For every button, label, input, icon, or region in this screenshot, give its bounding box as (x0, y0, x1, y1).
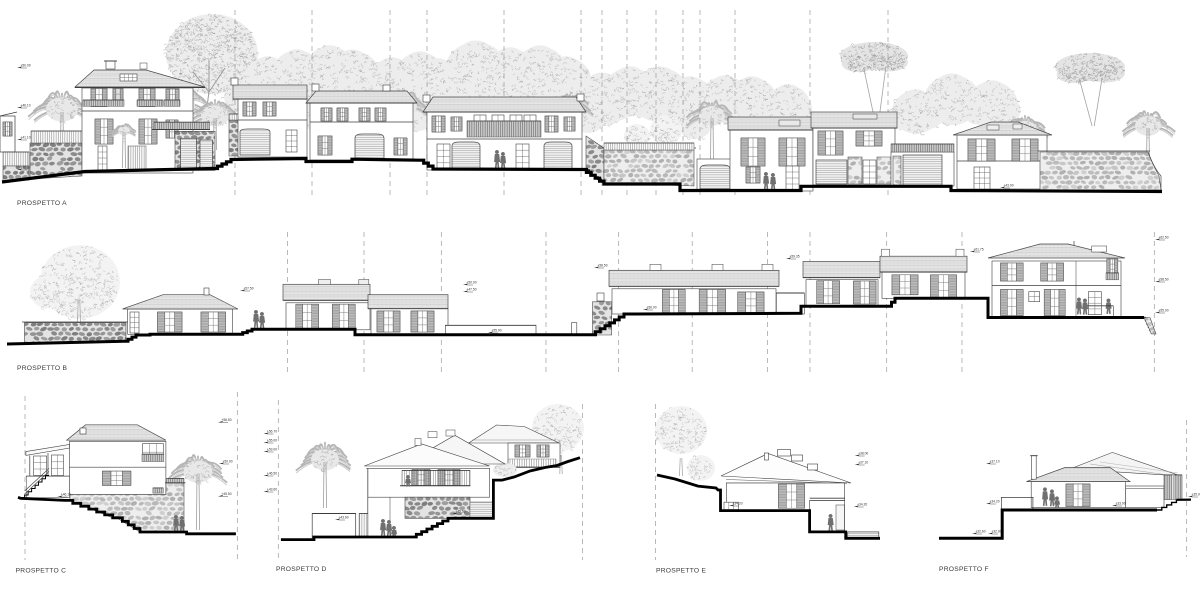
svg-text:+46.10: +46.10 (20, 103, 30, 107)
svg-text:+32.00: +32.00 (991, 529, 1001, 533)
svg-text:+57.50: +57.50 (243, 286, 253, 290)
svg-text:+37.10: +37.10 (858, 460, 868, 464)
svg-text:+35.00: +35.00 (1191, 492, 1200, 496)
svg-text:+41.10: +41.10 (20, 135, 30, 139)
svg-text:PROSPETTO B: PROSPETTO B (17, 365, 67, 372)
svg-text:+34.20: +34.20 (732, 501, 742, 505)
svg-text:+55.00: +55.00 (1158, 308, 1168, 312)
svg-text:PROSPETTO C: PROSPETTO C (16, 568, 67, 575)
svg-text:+33.00: +33.00 (1115, 501, 1125, 505)
svg-text:+46.50: +46.50 (267, 471, 277, 475)
svg-text:+56.70: +56.70 (267, 429, 277, 433)
svg-text:+37.10: +37.10 (989, 459, 999, 463)
svg-text:+38.00: +38.00 (858, 451, 868, 455)
svg-text:PROSPETTO D: PROSPETTO D (276, 566, 327, 573)
svg-text:+43.00: +43.00 (1003, 183, 1013, 187)
svg-text:+43.60: +43.60 (267, 487, 277, 491)
svg-text:+38.00: +38.00 (20, 165, 30, 169)
svg-text:+45.50: +45.50 (221, 492, 231, 496)
svg-text:+50.00: +50.00 (222, 459, 232, 463)
svg-text:+46.10: +46.10 (61, 492, 71, 496)
svg-text:+56.00: +56.00 (646, 305, 656, 309)
svg-text:+55.00: +55.00 (267, 438, 277, 442)
svg-text:+58.50: +58.50 (597, 263, 607, 267)
svg-text:+58.50: +58.50 (1158, 277, 1168, 281)
svg-text:+47.50: +47.50 (466, 287, 476, 291)
svg-text:+62.50: +62.50 (1158, 235, 1168, 239)
svg-text:+43.60: +43.60 (338, 515, 348, 519)
svg-text:+61.75: +61.75 (973, 247, 983, 251)
svg-text:+34.20: +34.20 (989, 499, 999, 503)
svg-text:PROSPETTO F: PROSPETTO F (939, 566, 989, 573)
svg-text:+53.00: +53.00 (267, 447, 277, 451)
svg-text:PROSPETTO E: PROSPETTO E (656, 568, 706, 575)
svg-text:+58.50: +58.50 (221, 418, 231, 422)
svg-text:PROSPETTO A: PROSPETTO A (17, 200, 67, 207)
svg-text:+50.09: +50.09 (20, 63, 30, 67)
svg-text:+50.00: +50.00 (466, 280, 476, 284)
svg-text:+34.20: +34.20 (857, 502, 867, 506)
svg-text:+59.35: +59.35 (789, 254, 799, 258)
svg-text:+55.00: +55.00 (491, 328, 501, 332)
svg-text:+45.50: +45.50 (455, 509, 465, 513)
svg-text:+32.60: +32.60 (975, 529, 985, 533)
